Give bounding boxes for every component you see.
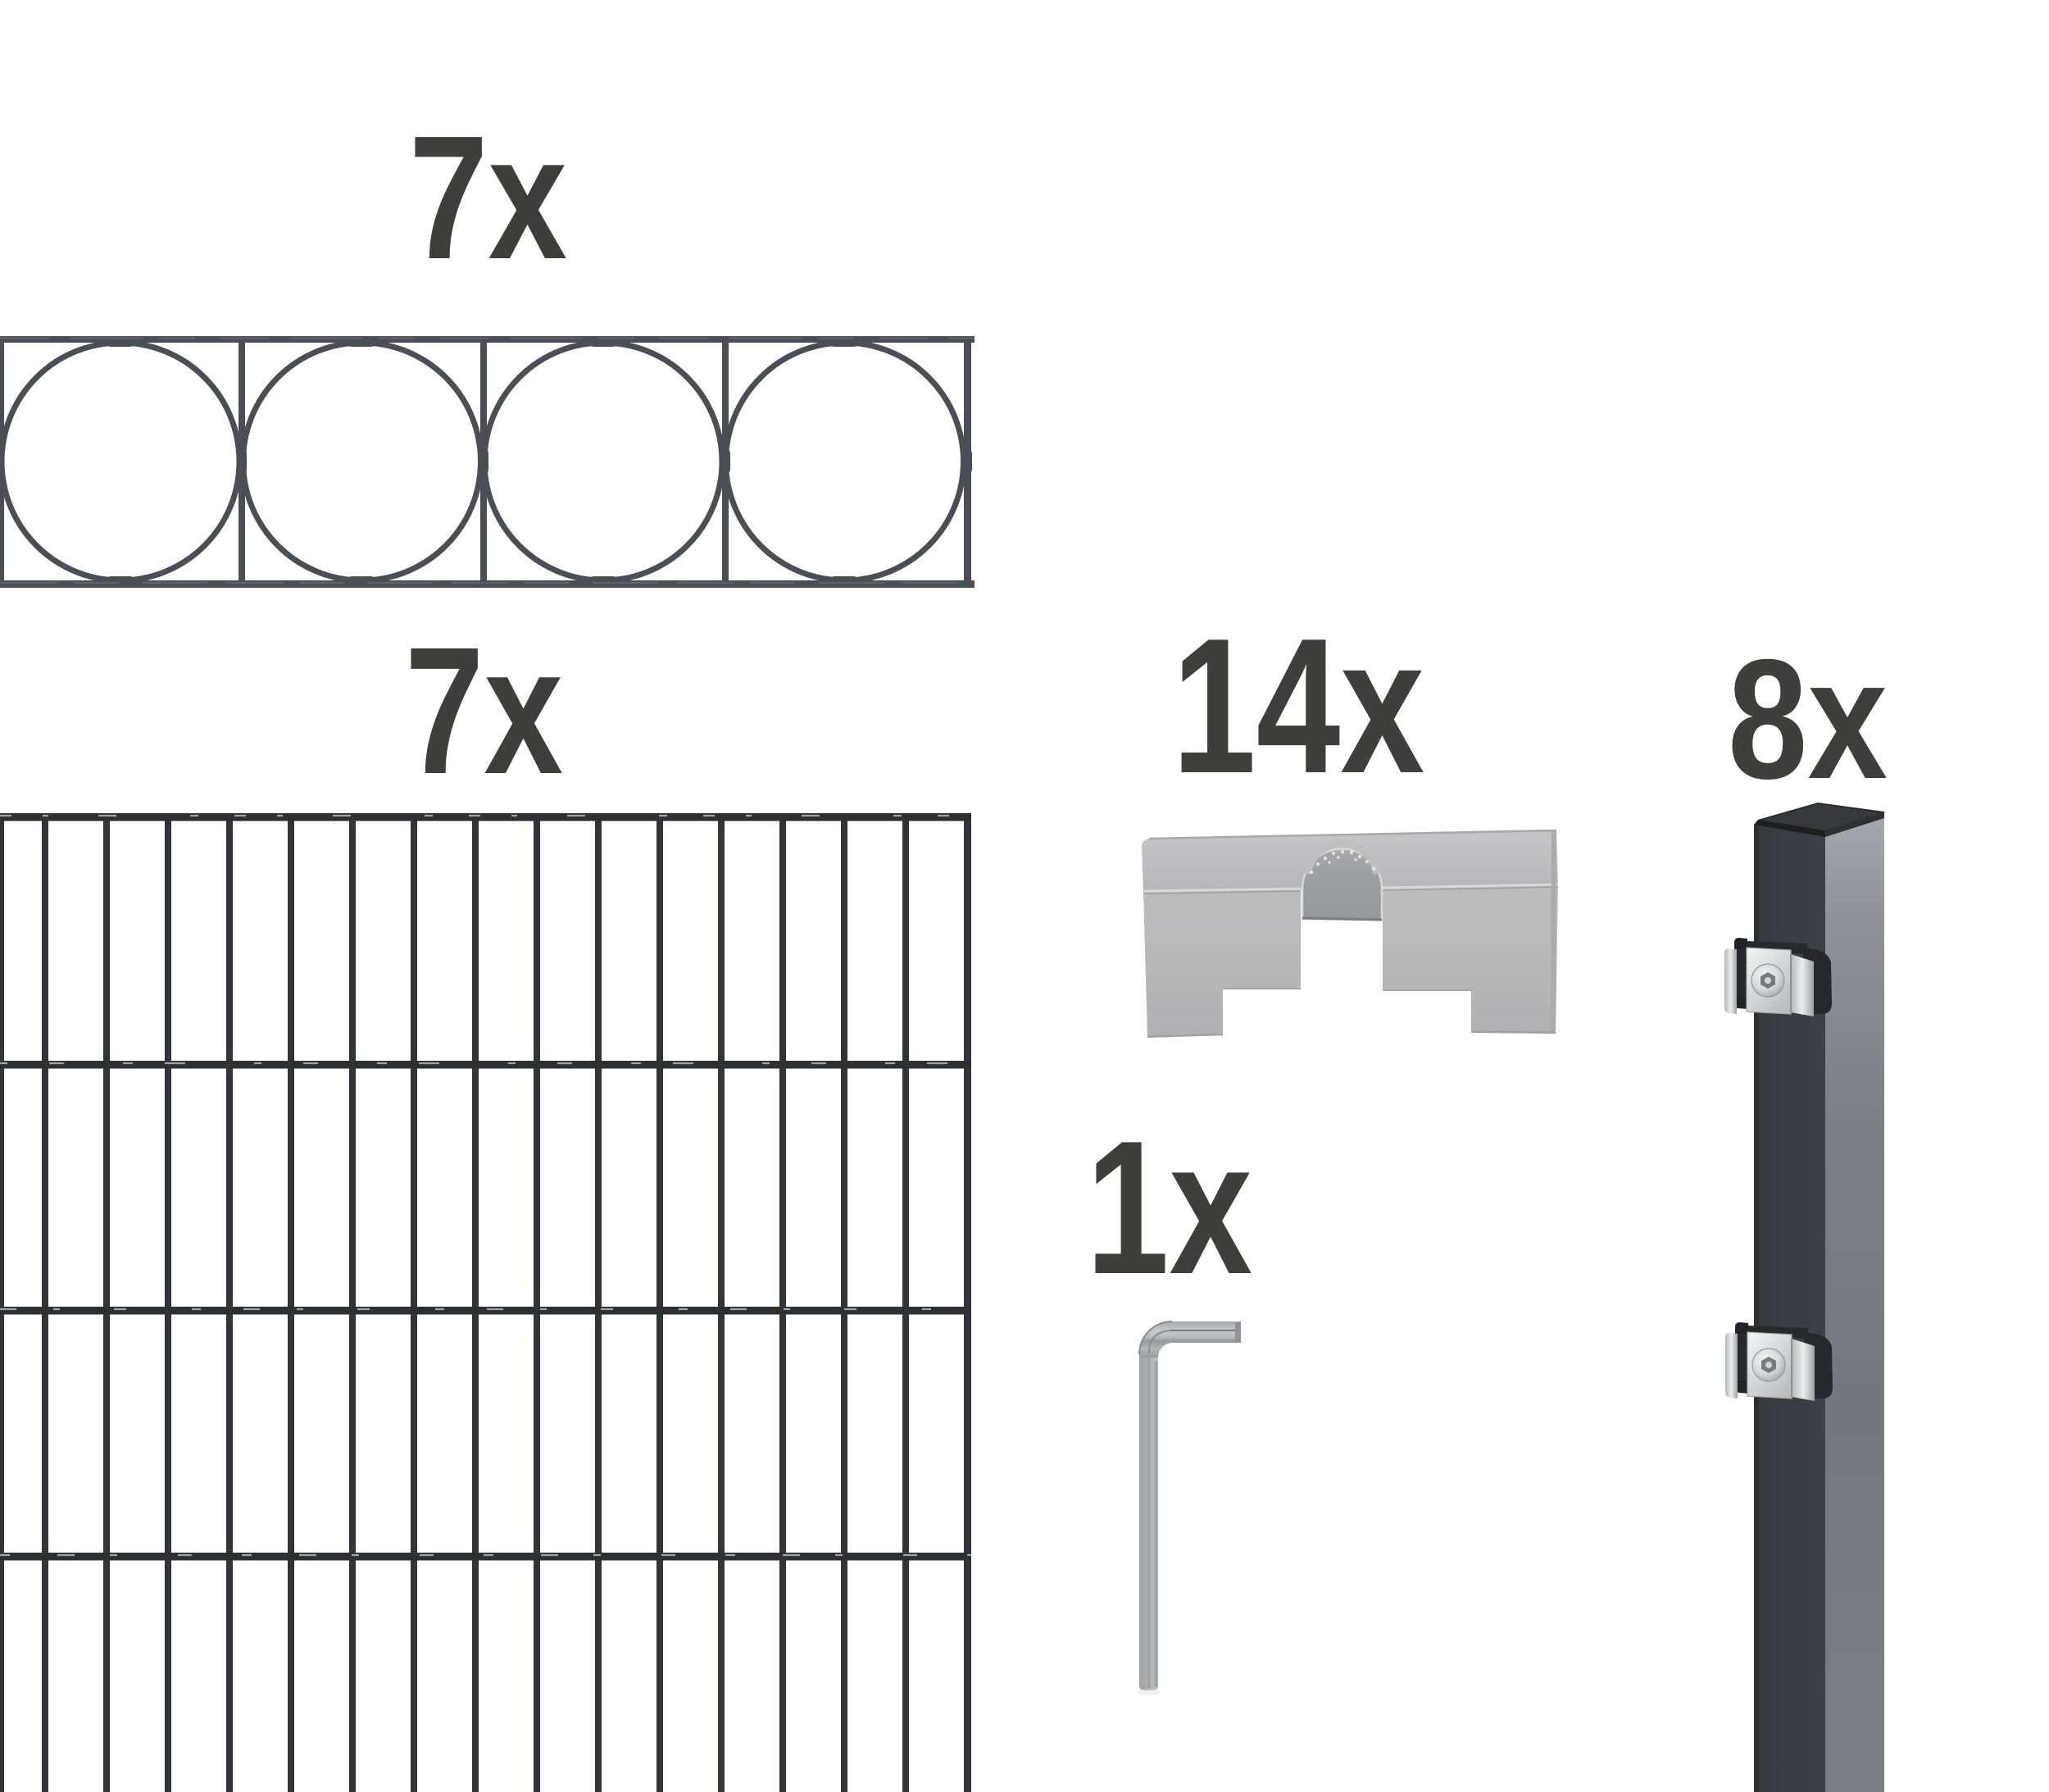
svg-text:14x: 14x — [1172, 598, 1424, 813]
svg-text:7x: 7x — [409, 98, 567, 296]
svg-text:1x: 1x — [1086, 1102, 1252, 1314]
svg-text:7x: 7x — [405, 609, 563, 812]
svg-text:8x: 8x — [1728, 625, 1888, 815]
